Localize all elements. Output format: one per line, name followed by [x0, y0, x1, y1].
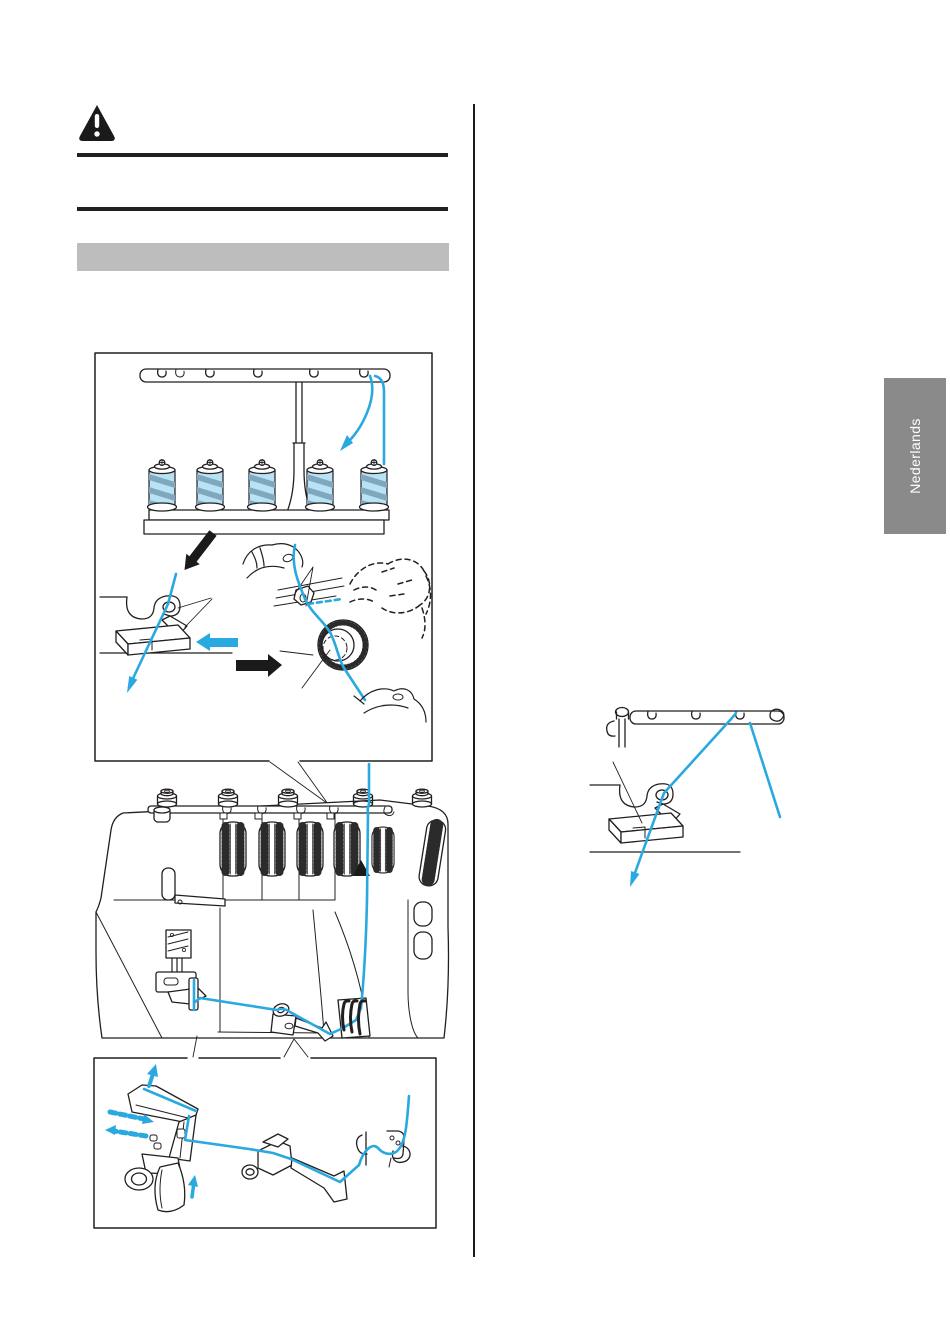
- thread-tree-bar: [607, 708, 784, 748]
- warning-icon: [77, 103, 117, 144]
- spool-stand: [144, 510, 389, 534]
- figure-thread-tree-guide: [588, 695, 898, 895]
- figure-spool-stand-threading: [95, 353, 432, 761]
- spool-pin: [219, 789, 238, 807]
- heading-rule-top: [77, 153, 448, 157]
- spool-pin: [158, 789, 177, 807]
- thread-spool: [196, 460, 225, 511]
- thread-guide-detail: [590, 762, 740, 852]
- tension-dial: [220, 822, 246, 876]
- threading-figures: [92, 352, 472, 1232]
- thread-spool: [360, 460, 389, 511]
- figure-machine-front: [96, 762, 449, 1041]
- language-tab-label: Nederlands: [907, 418, 923, 494]
- spool-pin: [413, 789, 432, 807]
- thread-spool: [148, 460, 177, 511]
- callout-lines: [193, 1036, 308, 1057]
- thread-arrowhead: [630, 871, 640, 887]
- tension-dial: [372, 827, 394, 873]
- section-heading-bar: [77, 243, 449, 271]
- tension-dial: [334, 822, 360, 876]
- figure-looper-threading: [94, 1036, 436, 1228]
- tension-dial: [297, 822, 323, 876]
- spool-pin: [279, 789, 298, 807]
- language-tab: Nederlands: [884, 378, 946, 534]
- tension-dial: [259, 822, 285, 876]
- manual-page: Nederlands: [0, 0, 950, 1341]
- heading-rule-bottom: [77, 207, 448, 211]
- thread-spool: [306, 460, 335, 511]
- thread-spool: [248, 460, 277, 511]
- column-divider: [473, 104, 475, 1257]
